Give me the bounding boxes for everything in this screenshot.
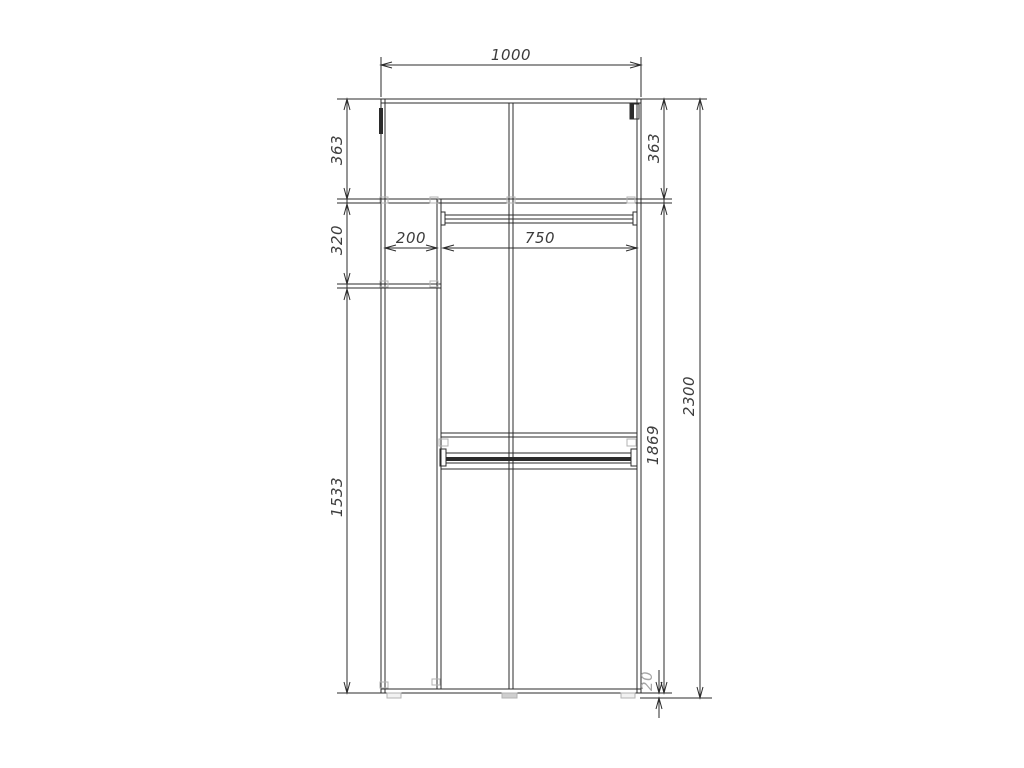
- wardrobe-drawing: 1000 200 750 363 320 1533 363 1869 2300 …: [0, 0, 1024, 768]
- upper-hanging-rod: [441, 212, 637, 225]
- fitting-icon: [627, 197, 635, 203]
- dim-right-inner-height: 1869: [644, 425, 662, 465]
- left-side-panel: [381, 99, 385, 693]
- dim-overall-width: 1000: [491, 46, 531, 64]
- center-partition: [509, 103, 513, 689]
- dim-overall-height: 2300: [680, 376, 698, 416]
- dark-details: [379, 104, 634, 461]
- right-side-panel: [637, 99, 641, 693]
- upper-rod-right-cap: [633, 212, 637, 225]
- feet: [387, 693, 635, 698]
- dim-niche-width: 200: [396, 229, 426, 247]
- dim-left-lower-height: 1533: [328, 477, 346, 517]
- middle-rod-right-cap: [631, 449, 637, 466]
- foot-center: [502, 693, 517, 698]
- middle-shelf: [441, 433, 637, 437]
- rod-bracket-icon: [439, 439, 448, 446]
- dim-base-gap: 20: [638, 671, 656, 691]
- hinge-bracket-fill: [630, 104, 634, 119]
- fittings: [380, 197, 636, 688]
- dim-rod-width: 750: [525, 229, 555, 247]
- foot-left: [387, 693, 401, 698]
- top-shelf: [381, 199, 641, 203]
- blueprint-canvas: 1000 200 750 363 320 1533 363 1869 2300 …: [0, 0, 1024, 768]
- upper-rod-left-cap: [441, 212, 445, 225]
- fitting-icon: [507, 197, 515, 203]
- foot-right: [621, 693, 635, 698]
- cabinet-structure: [381, 99, 641, 693]
- top-panel: [381, 99, 641, 103]
- dim-top-left-height: 363: [328, 135, 346, 165]
- rod-bracket-icon: [627, 439, 636, 446]
- fitting-icon: [432, 679, 440, 685]
- bottom-panel: [381, 689, 641, 693]
- hinge-mark-left: [379, 108, 383, 134]
- dim-top-right-height: 363: [645, 133, 663, 163]
- base-gap-label-group: 20: [638, 671, 656, 691]
- dim-left-niche-height: 320: [328, 225, 346, 255]
- middle-rod-dark-band: [446, 457, 631, 461]
